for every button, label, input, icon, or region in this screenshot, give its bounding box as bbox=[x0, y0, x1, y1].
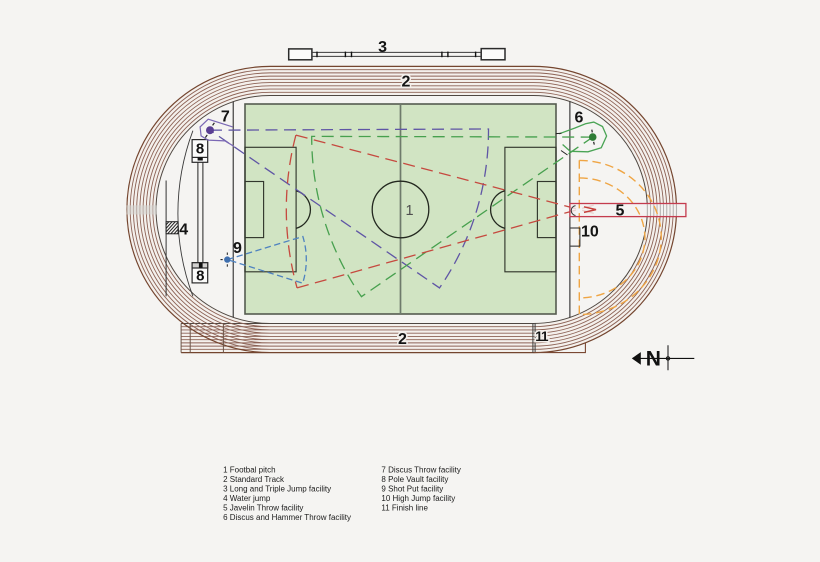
svg-text:7 Discus Throw facility: 7 Discus Throw facility bbox=[381, 466, 460, 475]
svg-text:10: 10 bbox=[581, 223, 599, 240]
svg-text:3: 3 bbox=[378, 39, 387, 56]
svg-text:4: 4 bbox=[179, 221, 188, 238]
svg-text:10 High Jump facility: 10 High Jump facility bbox=[381, 494, 455, 503]
svg-text:5: 5 bbox=[615, 203, 624, 220]
svg-text:1 Footbal pitch: 1 Footbal pitch bbox=[223, 466, 275, 475]
svg-text:4 Water jump: 4 Water jump bbox=[223, 494, 271, 503]
svg-text:2: 2 bbox=[402, 73, 411, 90]
svg-text:6 Discus and Hammer Throw faci: 6 Discus and Hammer Throw facility bbox=[223, 513, 351, 522]
svg-text:5 Javelin Throw facility: 5 Javelin Throw facility bbox=[223, 503, 303, 512]
svg-text:7: 7 bbox=[221, 109, 230, 126]
svg-text:2 Standard Track: 2 Standard Track bbox=[223, 475, 285, 484]
svg-text:8 Pole Vault facility: 8 Pole Vault facility bbox=[381, 475, 448, 484]
svg-text:1: 1 bbox=[406, 203, 414, 219]
svg-text:11 Finish line: 11 Finish line bbox=[381, 503, 428, 512]
svg-text:11: 11 bbox=[535, 329, 549, 344]
svg-text:8: 8 bbox=[196, 268, 204, 285]
svg-text:2: 2 bbox=[398, 331, 407, 348]
svg-text:N: N bbox=[646, 347, 661, 370]
svg-text:8: 8 bbox=[196, 140, 204, 157]
svg-text:3 Long and Triple Jump facilit: 3 Long and Triple Jump facility bbox=[223, 485, 331, 494]
svg-text:9: 9 bbox=[233, 240, 242, 257]
svg-text:6: 6 bbox=[574, 109, 583, 126]
svg-text:9 Shot Put facility: 9 Shot Put facility bbox=[381, 485, 443, 494]
